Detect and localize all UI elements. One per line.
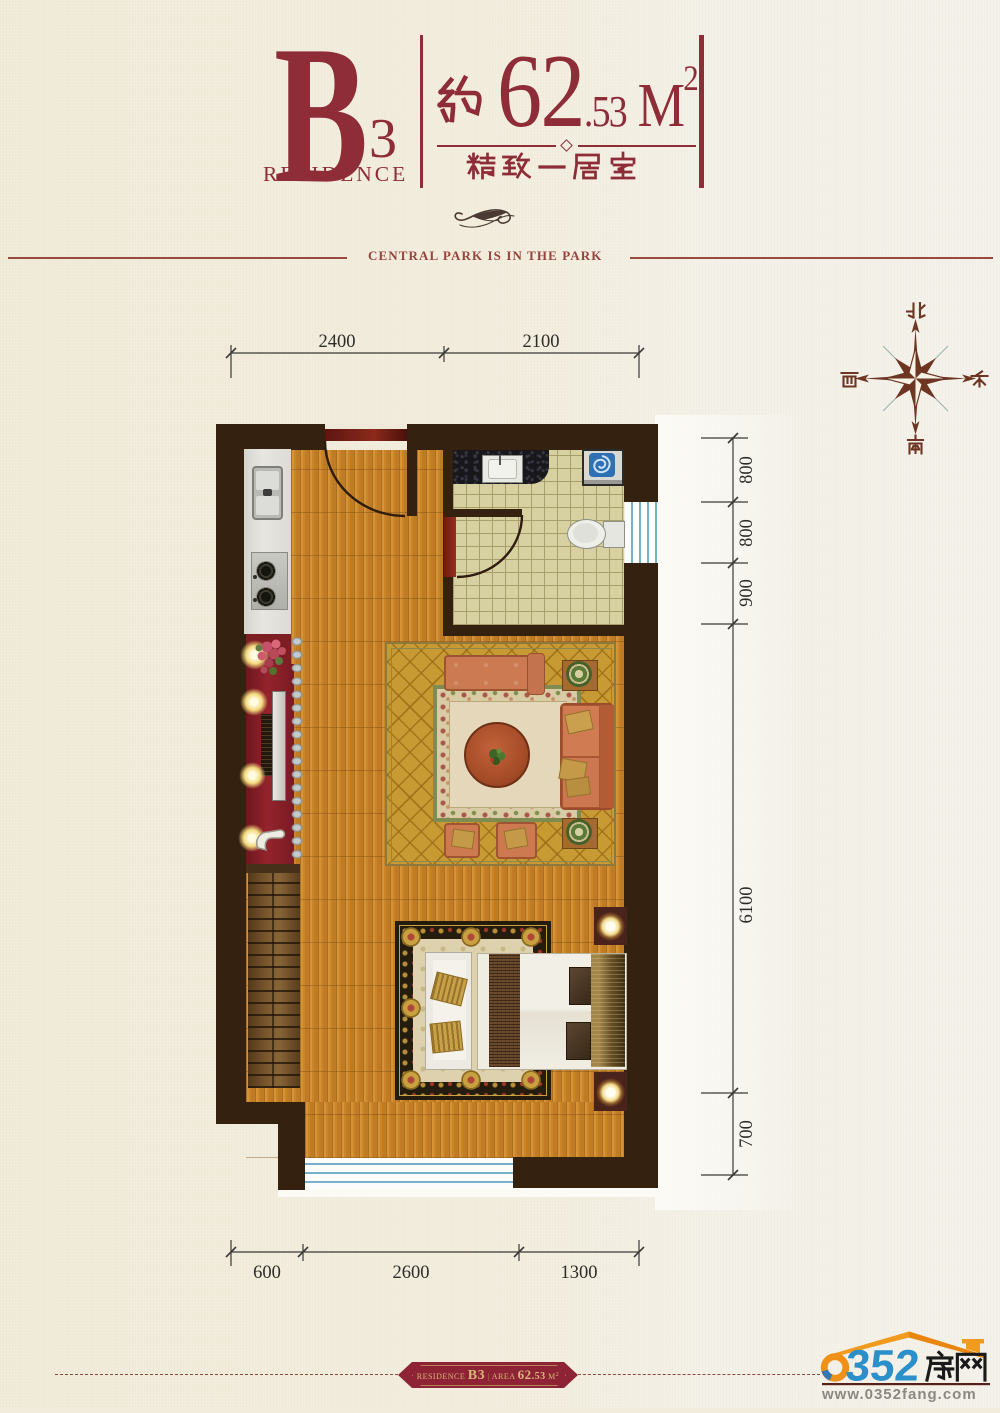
svg-text:www.0352fang.com: www.0352fang.com bbox=[821, 1386, 977, 1403]
